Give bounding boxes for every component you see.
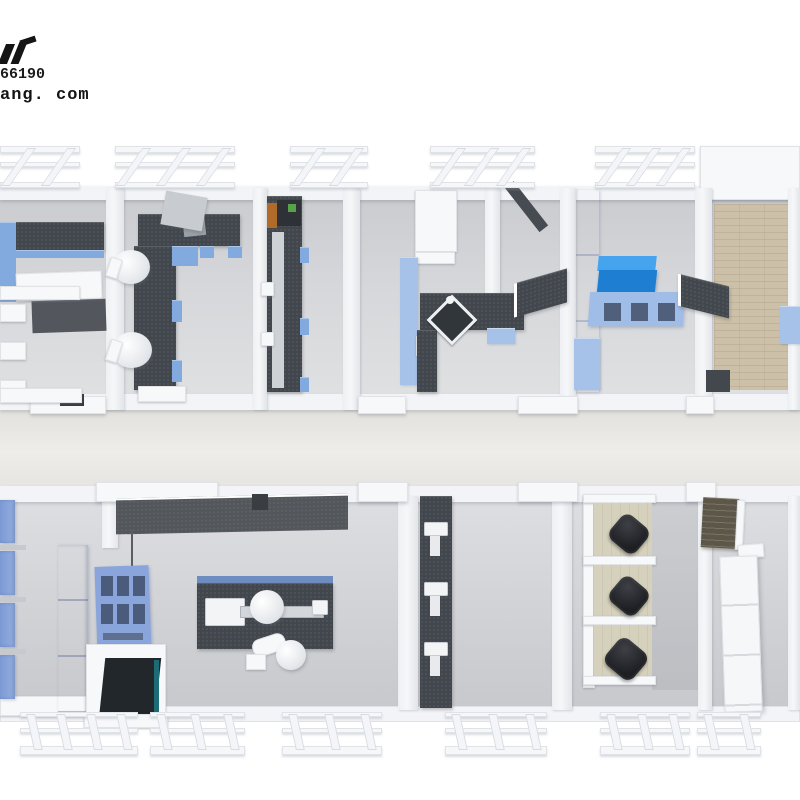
door-threshold (518, 396, 578, 414)
window-frame (0, 146, 80, 190)
desk-divider (583, 616, 656, 625)
wall-cabinet (0, 500, 15, 543)
faucet (446, 296, 454, 304)
roof-canopy (700, 146, 800, 200)
window-mullion (656, 148, 692, 186)
under-bench-cabinet (487, 328, 515, 344)
service-band-tab (252, 494, 268, 510)
bench-clamp (261, 332, 274, 346)
window-frame (282, 712, 382, 758)
cabinet-window (133, 604, 145, 624)
cabinet-window (101, 604, 113, 624)
wall-top-right-edge (788, 188, 800, 410)
robot-scope-head (276, 640, 306, 670)
desk-divider (583, 556, 656, 565)
blue-unit-top (597, 256, 657, 271)
bench-clamp (261, 282, 274, 296)
bench-blue-tab (300, 247, 309, 263)
window-mullion (464, 148, 500, 186)
wash-fixture-stem (430, 536, 440, 556)
door-threshold (518, 482, 578, 502)
instrument-tray (205, 598, 245, 626)
window-rail (290, 162, 368, 167)
bench-blue-tab (228, 246, 242, 258)
window-frame (697, 712, 761, 758)
door-threshold (358, 396, 406, 414)
fume-hood-interior (99, 658, 162, 720)
floorplan-render: 66190 ang. com (0, 0, 800, 800)
tall-blue-cabinet (58, 545, 88, 713)
refrigerator-drawer (415, 252, 455, 264)
cabinet-window (133, 576, 145, 596)
wall-cabinet (0, 655, 15, 699)
shelf-bracket (0, 342, 26, 360)
window-mullion (431, 148, 467, 186)
wash-fixture (424, 582, 448, 596)
wall-shelf (0, 388, 82, 403)
window-rail (430, 182, 535, 188)
cabinet-window (117, 576, 129, 596)
blue-unit-front (597, 270, 657, 293)
bench-blue-tab (172, 300, 182, 322)
wall-cabinet (0, 603, 15, 647)
cabinet-window (117, 604, 129, 624)
wall-t1-t2 (106, 188, 124, 410)
wall-t2-t2b (253, 188, 267, 410)
reagent-shelf (272, 232, 284, 388)
tall-cabinet (400, 257, 418, 385)
overhead-service-band (116, 494, 348, 535)
wall-bottom-right-edge (788, 496, 800, 710)
microscope-body (250, 590, 284, 624)
bench-clamp (312, 600, 328, 615)
watermark-site-fragment: ang. com (0, 86, 90, 105)
shelf-board (0, 597, 26, 602)
dark-counter (706, 370, 730, 392)
bench-blue-corner (172, 246, 198, 266)
cabinet-window (101, 576, 113, 596)
window-frame (430, 146, 535, 190)
window-frame (600, 712, 690, 758)
window-mullion (291, 148, 327, 186)
wall-t3-partition (485, 188, 500, 302)
shelf-board (0, 545, 26, 550)
window-mullion (496, 148, 532, 186)
bench-vent-panel (658, 303, 675, 321)
window-rail (595, 182, 695, 188)
bench-vent-panel (631, 303, 648, 321)
blue-cabinet (574, 338, 600, 390)
window-frame (445, 712, 547, 758)
refrigerator (415, 190, 457, 252)
window-frame (290, 146, 368, 190)
watermark-phone-fragment: 66190 (0, 66, 45, 83)
window-frame (115, 146, 235, 190)
window-mullion (1, 148, 37, 186)
side-table (31, 299, 106, 334)
robot-base (246, 654, 266, 670)
wall-b2-b3 (398, 496, 418, 710)
window-mullion (41, 148, 77, 186)
wash-fixture (424, 522, 448, 536)
wall-b3-b4 (552, 496, 572, 710)
window-mullion (116, 148, 152, 186)
window-frame (595, 146, 695, 190)
window-rail (115, 146, 235, 153)
white-wardrobe (719, 555, 762, 712)
logo-mark-fragment (19, 36, 36, 47)
bench-end-slab (138, 386, 186, 402)
blue-cabinet (780, 306, 800, 344)
wall-cabinet (0, 551, 15, 595)
wash-fixture (424, 642, 448, 656)
bench-blue-tab (300, 377, 309, 392)
wash-fixture-stem (430, 656, 440, 676)
office-floor-shadow (652, 502, 698, 690)
window-rail (115, 182, 235, 188)
window-rail (0, 162, 80, 167)
wall-t2b-t3 (343, 188, 360, 410)
window-mullion (329, 148, 365, 186)
bench-blue-tab (200, 246, 214, 258)
bench-vent-panel (604, 303, 621, 321)
desk-divider (583, 676, 656, 685)
bench-blue-tab (300, 318, 309, 335)
equipment-orange (267, 203, 277, 228)
window-frame (20, 712, 138, 758)
wall-shelf (0, 286, 80, 300)
corridor-floor (0, 410, 800, 486)
window-mullion (156, 148, 192, 186)
window-mullion (196, 148, 232, 186)
wash-fixture-stem (430, 596, 440, 616)
wood-locker-top (701, 497, 740, 549)
hanging-shelf (160, 191, 207, 232)
cabinet-slat (103, 633, 143, 640)
bench-blue-tab (172, 360, 182, 382)
corner-bench-return (417, 330, 437, 392)
window-mullion (596, 148, 632, 186)
door-threshold (358, 482, 408, 502)
door-threshold (686, 396, 714, 414)
fume-hood-teal-edge (154, 660, 159, 718)
window-frame (150, 712, 245, 758)
desk-divider (583, 494, 656, 503)
shelf-bracket (0, 304, 26, 322)
equipment-green (288, 204, 296, 212)
window-mullion (626, 148, 662, 186)
shelf-board (0, 649, 26, 654)
